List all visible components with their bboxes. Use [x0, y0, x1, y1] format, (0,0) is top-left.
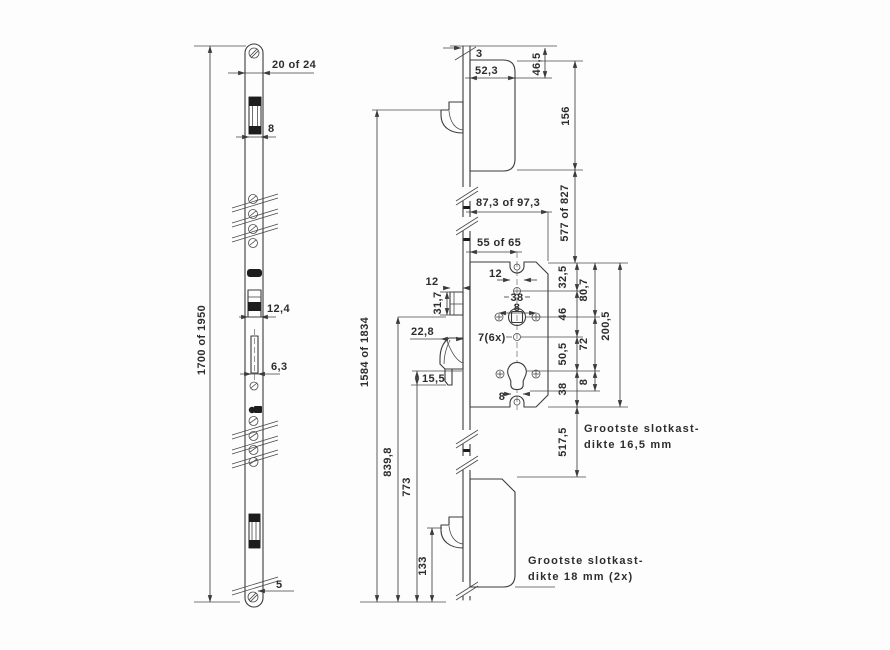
dim-backset: 55 of 65: [466, 237, 522, 252]
screw-top: [249, 48, 259, 58]
dim-latch-height-label: 31,7: [432, 291, 444, 314]
dim-cyl-width-label: 8: [499, 391, 506, 403]
dim-latch-height: 31,7: [432, 291, 452, 315]
dim-case-height-label: 200,5: [600, 311, 612, 341]
dim-slot-width-label: 6,3: [271, 361, 288, 373]
dim-notch-width: 12: [489, 268, 537, 280]
note-slotkast-18: Grootste slotkast- dikte 18 mm (2x): [528, 555, 644, 583]
dim-case-width-label: 52,3: [475, 65, 498, 77]
screw-group-lower: [249, 417, 258, 467]
bolt-element: [248, 290, 261, 317]
dim-517-5: 517,5: [517, 407, 586, 477]
dim-hook-stickout-label: 22,8: [411, 326, 434, 338]
faceplate-screw-ticks: [464, 206, 471, 452]
note1-line2: dikte 16,5 mm: [584, 439, 672, 451]
dim-80-7-label: 80,7: [578, 278, 590, 301]
dim-chain-outer: 80,7 72 8: [578, 263, 595, 391]
dim-plate-thickness-label: 3: [476, 48, 483, 60]
dim-50-5-label: 50,5: [557, 342, 569, 365]
dim-72-label: 72: [578, 337, 590, 350]
dim-slot-width: 6,3: [240, 361, 288, 374]
dim-133-label: 133: [417, 556, 429, 576]
note-slotkast-16-5: Grootste slotkast- dikte 16,5 mm: [584, 423, 700, 451]
dim-839-8-label: 839,8: [382, 447, 394, 477]
dim-133: 133: [417, 528, 442, 602]
dim-156: 156: [517, 61, 583, 170]
right-view-side-section: 3 52,3 46,5 156 577 of 827: [359, 46, 700, 602]
faceplate-edge: [463, 46, 470, 600]
dim-46-5-label: 46,5: [531, 52, 543, 75]
dim-8-label: 8: [578, 379, 590, 386]
dim-577-of-827: 577 of 827: [559, 170, 575, 263]
hook-slot-bar: [247, 269, 262, 277]
note1-line1: Grootste slotkast-: [584, 423, 700, 435]
dim-hook-step-label: 15,5: [422, 373, 445, 385]
note2-line1: Grootste slotkast-: [528, 555, 644, 567]
latch-bolt: [450, 292, 463, 315]
hook-bolt-bottom: [441, 517, 463, 548]
dim-517-5-label: 517,5: [557, 427, 569, 457]
lock-drawing-canvas: 1700 of 1950 20 of 24: [0, 0, 890, 650]
dim-latch-stickout-label: 12: [425, 276, 438, 288]
dim-notch-width-label: 12: [489, 268, 502, 280]
dim-773: 773: [401, 371, 417, 602]
dim-backset-label: 55 of 65: [477, 237, 521, 249]
dim-38-label: 38: [557, 382, 569, 395]
dim-chain-inner: 32,5 46 50,5 38: [557, 263, 577, 407]
dim-bolt-width: 12,4: [239, 303, 290, 317]
dim-46-5: 46,5: [531, 48, 545, 78]
dim-577-label: 577 of 827: [559, 184, 571, 241]
dim-total-length: 1700 of 1950: [194, 46, 246, 602]
dim-773-label: 773: [401, 477, 413, 497]
note2-line2: dikte 18 mm (2x): [528, 571, 633, 583]
dim-hole-spacing: 38 8: [499, 292, 536, 314]
break-marks-lower: [232, 421, 278, 468]
hole-7-6x-label: 7(6x): [478, 332, 506, 344]
screw-bottom: [248, 592, 258, 602]
dim-plate-width-label: 20 of 24: [272, 59, 317, 71]
dim-32-5-label: 32,5: [557, 265, 569, 288]
dim-bolt-width-label: 12,4: [267, 303, 290, 315]
dim-839-8: 839,8: [382, 317, 398, 602]
hook-bolt-top: [441, 102, 463, 133]
dim-case-depth: 87,3 of 97,3: [466, 197, 552, 261]
key-glyph: [249, 406, 262, 413]
dim-end-offset-label: 5: [276, 579, 283, 591]
euro-cylinder-hole: [496, 362, 540, 389]
dim-latch-width-label: 8: [268, 123, 275, 135]
dim-156-label: 156: [560, 106, 572, 126]
dim-hook-step: 15,5: [411, 373, 446, 385]
latch-element-bottom: [249, 514, 260, 548]
dim-46-label: 46: [557, 307, 569, 320]
dim-case-depth-label: 87,3 of 97,3: [476, 197, 540, 209]
dim-hook-stickout: 22,8: [410, 326, 463, 339]
dim-total-length-label: 1700 of 1950: [196, 305, 208, 375]
hole-7-6x: 7(6x): [478, 332, 583, 344]
technical-drawing-page: 1700 of 1950 20 of 24: [0, 0, 890, 650]
left-view-front-elevation: 1700 of 1950 20 of 24: [194, 44, 317, 607]
bottom-lock-case: [470, 479, 515, 587]
dim-plate-width: 20 of 24: [228, 59, 317, 73]
dim-total-1584-label: 1584 of 1834: [359, 316, 371, 387]
latch-element-top: [249, 97, 261, 134]
slot-element: [251, 329, 258, 380]
screw-mid: [250, 382, 258, 390]
